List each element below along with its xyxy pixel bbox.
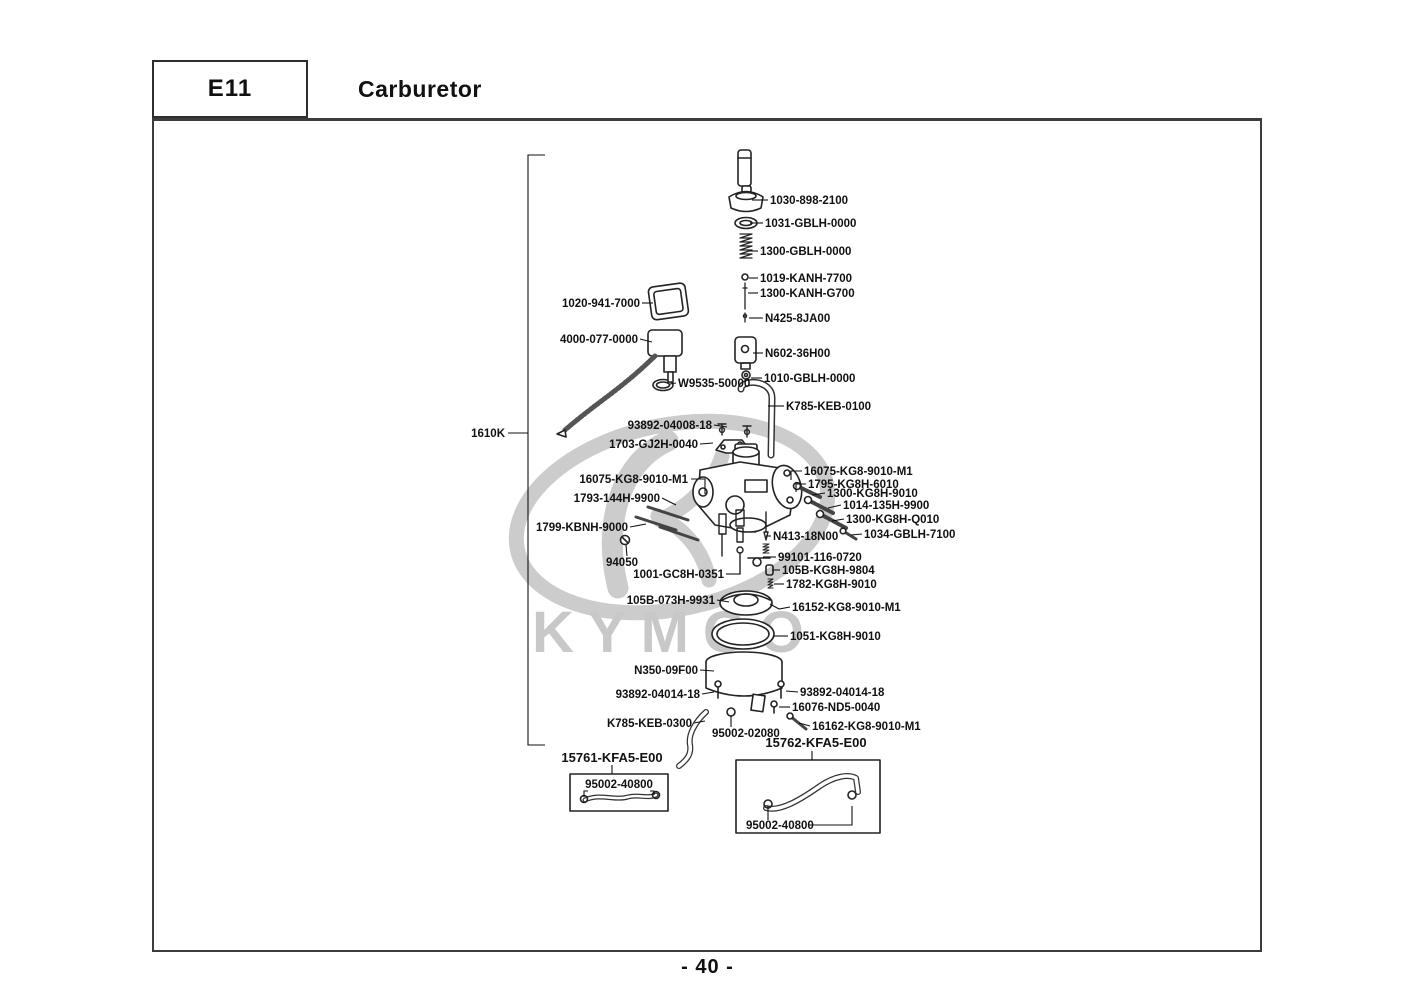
part-number-label: N602-36H00	[765, 348, 830, 360]
part-number-label: 1001-GC8H-0351	[633, 569, 724, 581]
carburetor-body	[693, 444, 806, 532]
part-number-label: 1030-898-2100	[770, 195, 848, 207]
part-number-label: 1300-GBLH-0000	[760, 246, 851, 258]
leader-line	[702, 692, 714, 694]
part-number-label: 1703-GJ2H-0040	[609, 439, 698, 451]
catalog-sheet: E11 Carburetor KYMCO	[0, 0, 1415, 1000]
part-number-label: 16075-KG8-9010-M1	[579, 474, 688, 486]
exploded-view-svg: KYMCO	[0, 0, 1415, 1000]
drain-screw	[787, 713, 806, 729]
part-number-label: 93892-04008-18	[628, 420, 713, 432]
part-number-label: 16162-KG8-9010-M1	[812, 721, 921, 733]
small-pin	[743, 313, 746, 322]
part-number-label: 16076-ND5-0040	[792, 702, 880, 714]
throttle-valve	[735, 337, 756, 369]
part-number-label: 1014-135H-9900	[843, 500, 929, 512]
leader-line	[851, 534, 862, 535]
part-number-label: 1010-GBLH-0000	[764, 373, 855, 385]
part-number-label: N350-09F00	[634, 665, 698, 677]
part-number-label: 16075-KG8-9010-M1	[804, 466, 913, 478]
part-number-label: K785-KEB-0100	[786, 401, 871, 413]
part-number-label: 15762-KFA5-E00	[765, 735, 866, 750]
part-number-label: W9535-50000	[678, 378, 750, 390]
part-number-label: 93892-04014-18	[616, 689, 701, 701]
part-number-label: 94050	[606, 557, 638, 569]
watermark-text: KYMCO	[532, 600, 818, 665]
part-number-label: N413-18N00	[773, 531, 838, 543]
hose-clamp	[727, 708, 735, 716]
part-number-label: 1782-KG8H-9010	[786, 579, 877, 591]
part-number-label: 99101-116-0720	[778, 552, 862, 564]
part-number-label: 1300-KG8H-Q010	[846, 514, 939, 526]
part-number-label: 1610K	[471, 428, 506, 440]
part-number-label: 105B-KG8H-9804	[782, 565, 875, 577]
leader-line	[700, 443, 713, 444]
part-number-label: 4000-077-0000	[560, 334, 638, 346]
part-number-label: 93892-04014-18	[800, 687, 885, 699]
part-number-label: 95002-40800	[746, 820, 814, 832]
auto-bystarter-box	[648, 283, 689, 321]
part-number-label: 95002-40800	[585, 779, 653, 791]
part-number-label: 1799-KBNH-9000	[536, 522, 628, 534]
part-number-label: K785-KEB-0300	[607, 718, 692, 730]
leader-line	[630, 524, 646, 527]
part-number-label: 1793-144H-9900	[574, 493, 660, 505]
part-number-label: 1034-GBLH-7100	[864, 529, 955, 541]
part-number-label: 1031-GBLH-0000	[765, 218, 856, 230]
section-code: E11	[208, 75, 252, 103]
jet-needle	[743, 283, 747, 309]
part-number-label: N425-8JA00	[765, 313, 830, 325]
needle-clip	[742, 274, 748, 280]
part-number-label: 16152-KG8-9010-M1	[792, 602, 901, 614]
leader-line	[662, 498, 676, 505]
idle-screw-94050	[621, 536, 630, 545]
bowl-gasket	[712, 619, 774, 649]
part-number-label: 105B-073H-9931	[627, 595, 716, 607]
float	[720, 591, 772, 615]
part-number-label: 1019-KANH-7700	[760, 273, 852, 285]
page-title: Carburetor	[358, 60, 482, 118]
leader-line	[786, 691, 798, 692]
part-number-label: 15761-KFA5-E00	[561, 750, 662, 765]
page-number: - 40 -	[0, 956, 1415, 979]
part-number-label: 1300-KG8H-9010	[827, 488, 918, 500]
part-number-label: 1020-941-7000	[562, 298, 640, 310]
slide-spring	[740, 234, 752, 258]
section-code-box: E11	[152, 60, 308, 118]
slide-tube	[738, 150, 751, 186]
leader-line	[626, 545, 627, 556]
part-number-label: 1300-KANH-G700	[760, 288, 855, 300]
carb-top-cap	[729, 186, 763, 212]
part-number-label: 1051-KG8H-9010	[790, 631, 881, 643]
